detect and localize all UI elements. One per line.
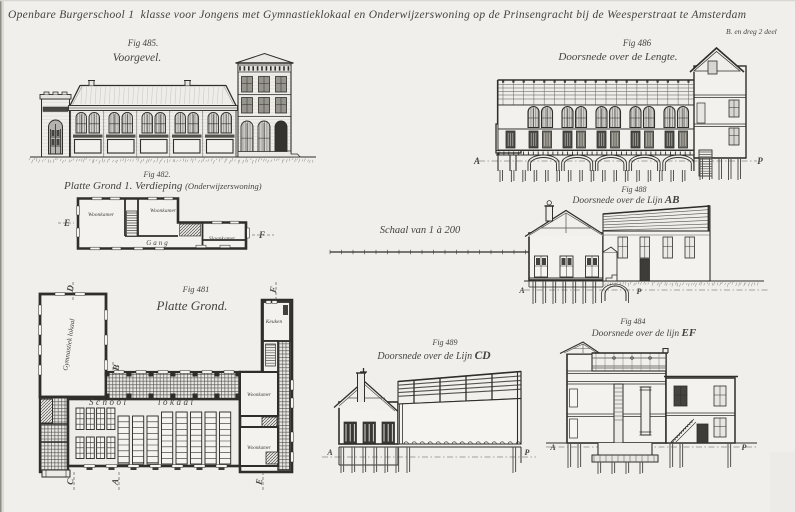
svg-text:Fig 484: Fig 484: [619, 317, 645, 326]
svg-text:Slaapkamer: Slaapkamer: [209, 236, 236, 242]
svg-text:A: A: [518, 286, 525, 295]
svg-text:Platte Grond 1. Verdieping (On: Platte Grond 1. Verdieping (Onderwijzers…: [63, 180, 262, 192]
svg-text:Woonkamer: Woonkamer: [150, 208, 177, 214]
svg-text:Woonkamer: Woonkamer: [247, 393, 271, 398]
svg-text:Schaal van 1 à 200: Schaal van 1 à 200: [380, 225, 461, 236]
svg-text:Fig 482.: Fig 482.: [142, 170, 170, 179]
svg-text:Fig 485.: Fig 485.: [127, 38, 159, 48]
svg-text:Fig 488: Fig 488: [620, 185, 646, 194]
svg-text:Fig 489: Fig 489: [431, 338, 457, 347]
svg-text:P: P: [637, 287, 642, 296]
svg-text:Woonkamer: Woonkamer: [88, 212, 115, 218]
svg-text:B. en dreg 2 deel: B. en dreg 2 deel: [726, 27, 777, 36]
svg-text:P: P: [757, 156, 763, 166]
svg-text:F: F: [258, 230, 265, 240]
svg-text:P: P: [742, 443, 747, 452]
svg-text:Woonkamer: Woonkamer: [247, 446, 271, 451]
svg-text:P: P: [525, 448, 530, 457]
svg-text:E: E: [63, 218, 70, 228]
svg-text:A: A: [473, 156, 480, 166]
svg-text:Fig 486: Fig 486: [622, 38, 652, 48]
svg-text:Platte Grond.: Platte Grond.: [155, 298, 227, 313]
svg-text:Keuken: Keuken: [265, 319, 283, 325]
svg-text:Doorsnede over de Lijn AB: Doorsnede over de Lijn AB: [571, 194, 679, 206]
svg-text:A: A: [326, 448, 333, 457]
svg-text:Gang: Gang: [146, 239, 170, 247]
svg-text:Doorsnede over de lijn EF: Doorsnede over de lijn EF: [591, 327, 697, 339]
svg-text:Voorgevel.: Voorgevel.: [113, 52, 161, 64]
svg-text:Doorsnede over de Lengte.: Doorsnede over de Lengte.: [557, 51, 677, 63]
svg-text:Fig 481: Fig 481: [182, 284, 210, 294]
svg-text:Openbare Burgerschool 1 klass: Openbare Burgerschool 1 klasse voor Jong…: [8, 9, 746, 21]
svg-text:A: A: [549, 443, 556, 452]
svg-text:Doorsnede over de Lijn CD: Doorsnede over de Lijn CD: [376, 350, 491, 362]
